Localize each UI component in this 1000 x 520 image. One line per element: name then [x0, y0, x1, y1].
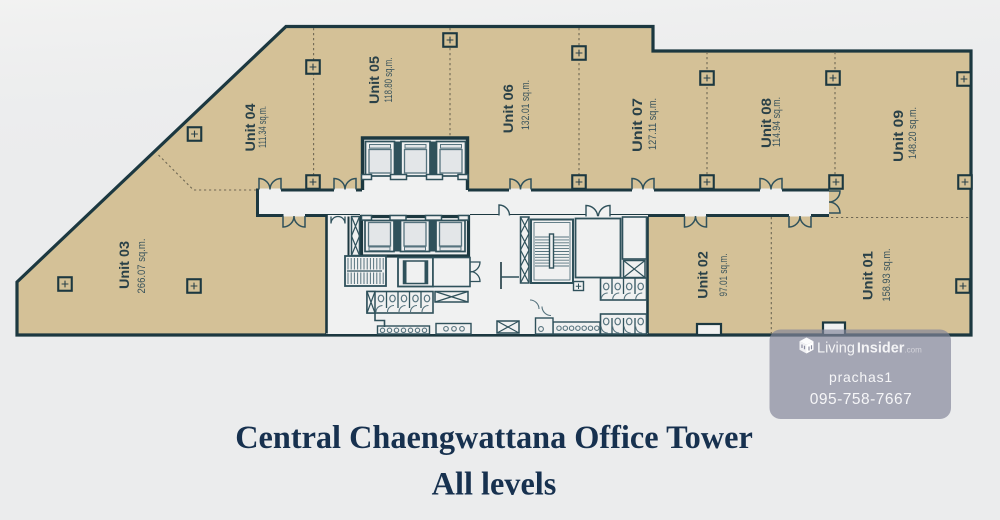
svg-text:118.80 sq.m.: 118.80 sq.m.: [383, 58, 395, 103]
svg-text:Unit 04: Unit 04: [242, 103, 258, 151]
svg-text:97.01 sq.m.: 97.01 sq.m.: [718, 254, 730, 297]
svg-text:148.20 sq.m.: 148.20 sq.m.: [907, 107, 919, 159]
svg-text:Unit 07: Unit 07: [629, 98, 645, 152]
svg-text:114.94 sq.m.: 114.94 sq.m.: [771, 97, 783, 147]
svg-text:132.01 sq.m.: 132.01 sq.m.: [520, 80, 532, 130]
svg-text:Unit 05: Unit 05: [366, 56, 382, 104]
svg-text:prachas1: prachas1: [829, 369, 893, 385]
svg-text:111.34 sq.m.: 111.34 sq.m.: [257, 106, 269, 148]
svg-text:266.07 sq.m.: 266.07 sq.m.: [136, 239, 148, 294]
svg-text:095-758-7667: 095-758-7667: [810, 391, 913, 408]
svg-text:Unit 03: Unit 03: [116, 241, 132, 289]
svg-text:158.93 sq.m.: 158.93 sq.m.: [881, 249, 893, 302]
svg-text:Unit 06: Unit 06: [500, 84, 516, 133]
svg-text:Unit 01: Unit 01: [860, 251, 876, 300]
svg-text:Unit 09: Unit 09: [890, 110, 906, 162]
svg-text:All levels: All levels: [432, 466, 557, 502]
svg-text:127.11 sq.m.: 127.11 sq.m.: [647, 98, 659, 150]
svg-text:Central Chaengwattana Office T: Central Chaengwattana Office Tower: [235, 419, 753, 455]
svg-text:Unit 02: Unit 02: [695, 251, 711, 299]
